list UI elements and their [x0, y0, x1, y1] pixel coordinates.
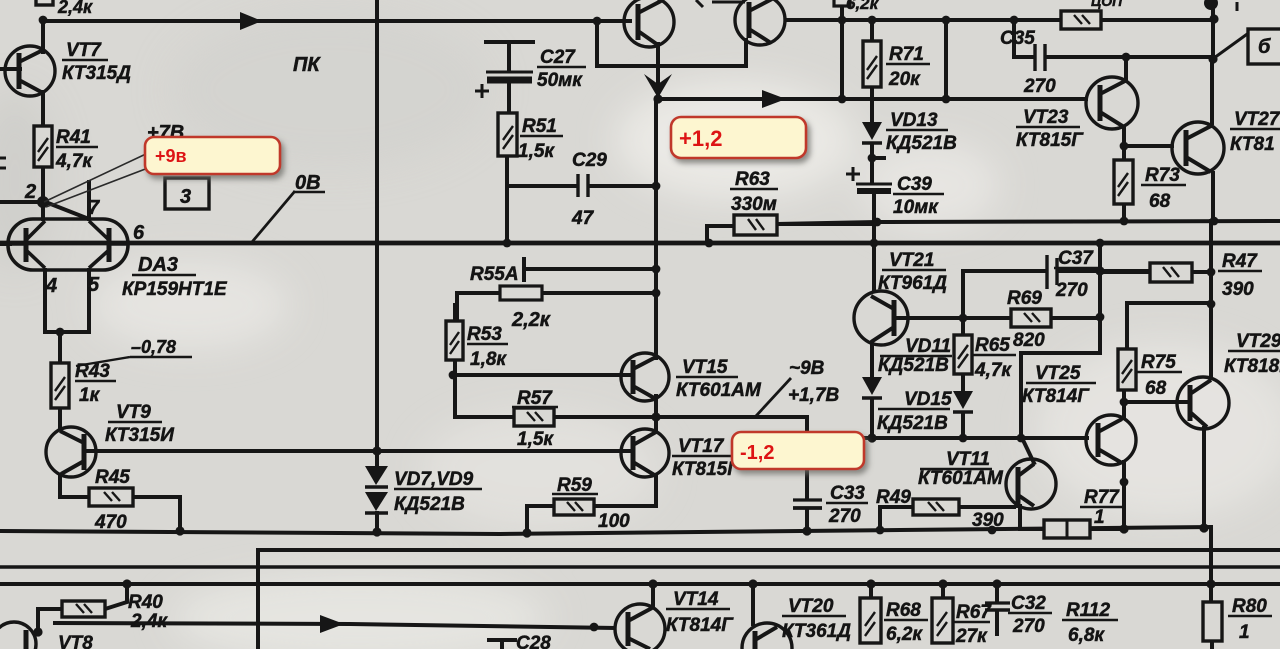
svg-text:б: б [1258, 36, 1271, 58]
svg-text:VT25: VT25 [1035, 363, 1081, 384]
svg-text:R65: R65 [975, 335, 1010, 356]
svg-text:С28: С28 [516, 633, 551, 649]
svg-text:VT21: VT21 [889, 250, 934, 271]
svg-text:VT11: VT11 [946, 449, 990, 470]
svg-text:820: 820 [1013, 330, 1045, 351]
svg-text:КТ361Д: КТ361Д [782, 621, 851, 642]
svg-text:С32: С32 [1011, 593, 1046, 614]
svg-text:КТ315Д: КТ315Д [62, 63, 131, 84]
svg-text:4,7к: 4,7к [55, 151, 93, 172]
svg-text:С29: С29 [572, 150, 607, 171]
svg-text:7: 7 [88, 197, 100, 219]
svg-text:КТ814Г: КТ814Г [666, 615, 734, 636]
svg-text:6,2к: 6,2к [886, 624, 923, 645]
svg-text:2: 2 [24, 181, 36, 203]
svg-text:КТ815Г: КТ815Г [1016, 130, 1084, 151]
svg-text:6,8к: 6,8к [1068, 625, 1105, 646]
svg-text:VT29: VT29 [1236, 331, 1280, 352]
svg-text:~9В: ~9В [789, 358, 825, 379]
svg-text:3: 3 [180, 186, 191, 208]
svg-text:R73: R73 [1145, 165, 1180, 186]
svg-text:4: 4 [45, 275, 57, 297]
svg-text:VT14: VT14 [673, 589, 719, 610]
svg-text:270: 270 [1012, 616, 1045, 637]
svg-text:2,4к: 2,4к [57, 0, 93, 17]
svg-text:–0,78: –0,78 [131, 337, 176, 357]
svg-text:47: 47 [571, 208, 595, 229]
svg-text:R67: R67 [956, 602, 992, 623]
svg-text:270: 270 [1023, 76, 1056, 97]
svg-text:5: 5 [88, 274, 100, 296]
svg-text:VT23: VT23 [1023, 107, 1069, 128]
svg-text:С27: С27 [540, 47, 576, 68]
svg-text:R77: R77 [1084, 487, 1120, 508]
svg-text:КД521В: КД521В [878, 355, 949, 376]
svg-text:6: 6 [133, 222, 145, 244]
svg-text:1,5к: 1,5к [518, 141, 555, 162]
svg-text:VT8: VT8 [58, 633, 93, 649]
svg-text:VT15: VT15 [682, 357, 728, 378]
svg-text:1: 1 [1239, 622, 1250, 643]
svg-text:68: 68 [1145, 378, 1167, 399]
svg-text:R112: R112 [1066, 600, 1110, 621]
svg-text:КТ315И: КТ315И [105, 425, 174, 446]
svg-text:С37: С37 [1058, 248, 1094, 269]
svg-text:VD13: VD13 [890, 110, 938, 131]
svg-text:КД521В: КД521В [394, 494, 465, 515]
svg-text:КТ961Д: КТ961Д [878, 273, 947, 294]
svg-text:10мк: 10мк [893, 197, 939, 218]
svg-text:2,2к: 2,2к [511, 309, 551, 331]
svg-text:VD11: VD11 [905, 336, 951, 357]
svg-text:VD7,VD9: VD7,VD9 [394, 469, 474, 490]
svg-text:50мк: 50мк [537, 70, 583, 91]
svg-text:КТ601АМ: КТ601АМ [676, 380, 762, 401]
svg-text:1: 1 [1094, 507, 1105, 528]
svg-text:КД521В: КД521В [877, 413, 948, 434]
svg-text:1к: 1к [79, 385, 101, 406]
svg-text:20к: 20к [888, 69, 921, 90]
svg-text:КТ81: КТ81 [1230, 134, 1275, 155]
svg-text:R40: R40 [128, 592, 163, 613]
svg-text:R53: R53 [467, 324, 502, 345]
svg-text:R80: R80 [1232, 596, 1267, 617]
svg-text:R55А: R55А [470, 264, 519, 285]
svg-text:КР159НТ1Е: КР159НТ1Е [122, 279, 228, 300]
svg-text:VT27: VT27 [1234, 109, 1280, 130]
svg-text:ПК: ПК [293, 54, 321, 76]
svg-text:КД521В: КД521В [886, 133, 957, 154]
svg-text:DA3: DA3 [138, 254, 178, 276]
svg-text:-1,2: -1,2 [740, 442, 774, 464]
svg-text:6,2к: 6,2к [846, 0, 880, 13]
svg-text:С39: С39 [897, 174, 932, 195]
svg-text:390: 390 [972, 510, 1004, 531]
svg-text:R43: R43 [75, 361, 110, 382]
svg-text:VT7: VT7 [66, 40, 102, 61]
svg-text:+9в: +9в [155, 146, 187, 166]
svg-text:R69: R69 [1007, 288, 1042, 309]
svg-text:R41: R41 [56, 127, 91, 148]
svg-text:R71: R71 [889, 44, 924, 65]
svg-text:VT17: VT17 [678, 436, 725, 457]
svg-text:VD15: VD15 [904, 389, 952, 410]
svg-text:270: 270 [1055, 280, 1088, 301]
svg-text:1,8к: 1,8к [470, 349, 507, 370]
svg-text:330м: 330м [731, 194, 777, 215]
svg-text:1,5к: 1,5к [517, 429, 554, 450]
svg-text:100: 100 [598, 511, 630, 532]
svg-text:КТ814Г: КТ814Г [1022, 386, 1090, 407]
svg-text:+1,7В: +1,7В [788, 385, 840, 406]
svg-text:27к: 27к [955, 626, 988, 647]
svg-text:R75: R75 [1141, 352, 1176, 373]
svg-text:68: 68 [1149, 191, 1171, 212]
svg-text:С35: С35 [1000, 28, 1035, 49]
svg-text:R45: R45 [95, 467, 130, 488]
svg-text:390: 390 [1222, 279, 1254, 300]
svg-text:R51: R51 [522, 116, 557, 137]
svg-text:+1,2: +1,2 [679, 126, 722, 151]
svg-text:КТ601АМ: КТ601АМ [918, 468, 1004, 489]
svg-text:270: 270 [828, 506, 861, 527]
svg-text:470: 470 [94, 512, 127, 533]
svg-text:R68: R68 [886, 600, 921, 621]
svg-text:R49: R49 [876, 487, 911, 508]
svg-text:2,4к: 2,4к [130, 611, 168, 632]
svg-text:4,7к: 4,7к [974, 360, 1012, 381]
svg-text:R47: R47 [1222, 251, 1258, 272]
svg-text:С33: С33 [830, 483, 865, 504]
svg-text:КТ815Г: КТ815Г [672, 459, 740, 480]
svg-text:VT20: VT20 [788, 596, 834, 617]
svg-text:VT9: VT9 [116, 402, 151, 423]
svg-text:КТ818Г: КТ818Г [1224, 356, 1280, 377]
svg-text:ЦОП: ЦОП [1091, 0, 1123, 9]
svg-text:R63: R63 [735, 169, 770, 190]
